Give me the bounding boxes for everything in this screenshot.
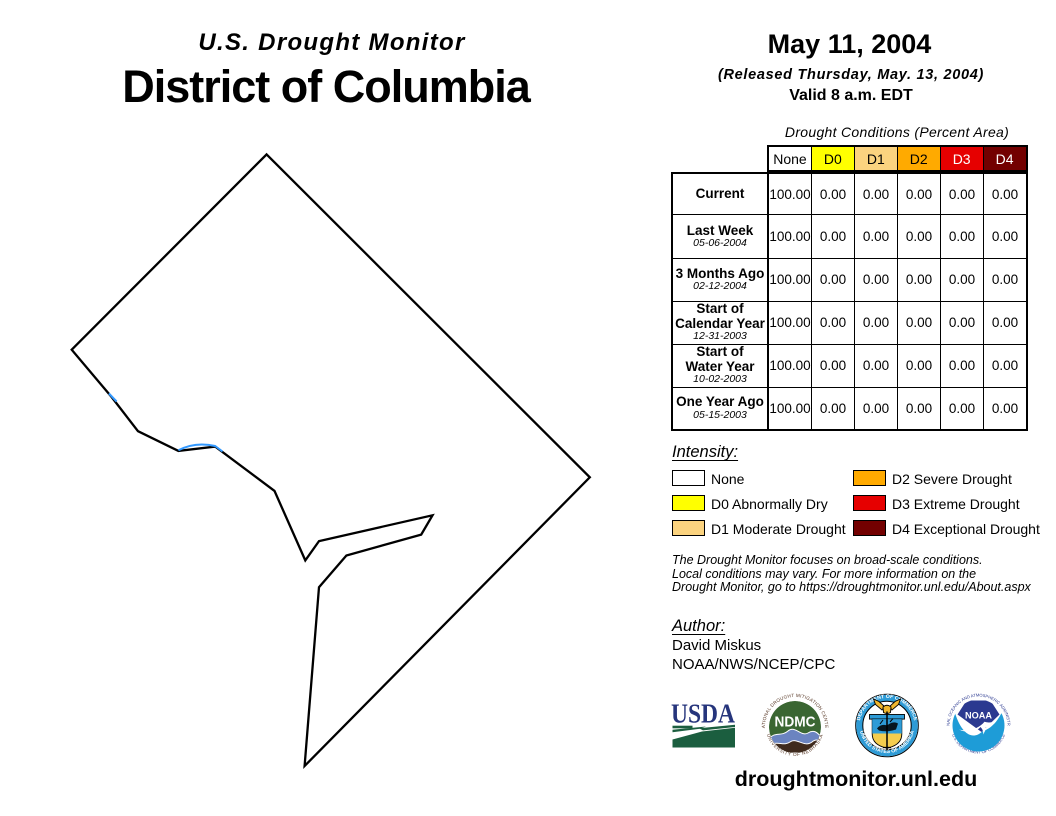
svg-text:USDA: USDA [671,699,735,729]
svg-text:NDMC: NDMC [775,714,816,731]
svg-text:NOAA: NOAA [965,711,993,721]
